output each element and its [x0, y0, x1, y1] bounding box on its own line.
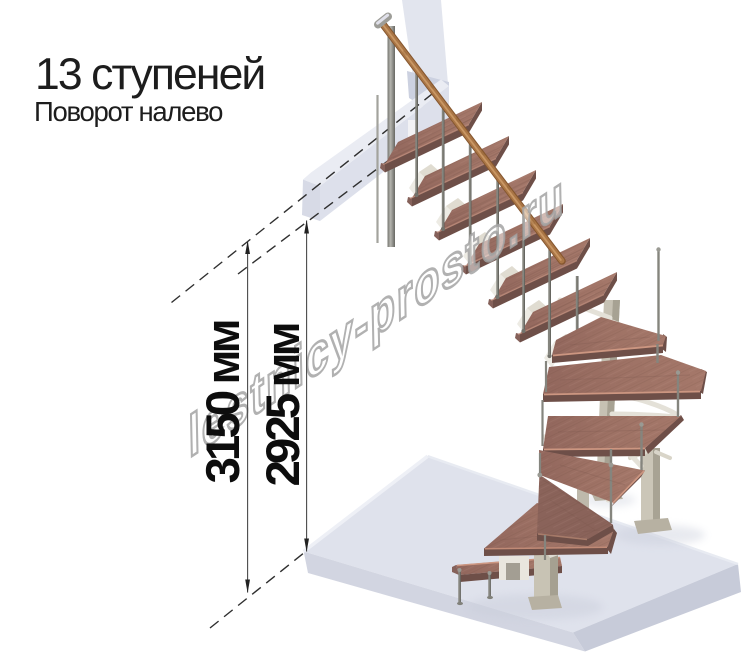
svg-text:2925 мм: 2925 мм	[257, 324, 310, 486]
svg-text:13 ступеней: 13 ступеней	[35, 50, 264, 99]
svg-text:Поворот налево: Поворот налево	[34, 96, 223, 127]
svg-text:3150 мм: 3150 мм	[197, 321, 250, 483]
